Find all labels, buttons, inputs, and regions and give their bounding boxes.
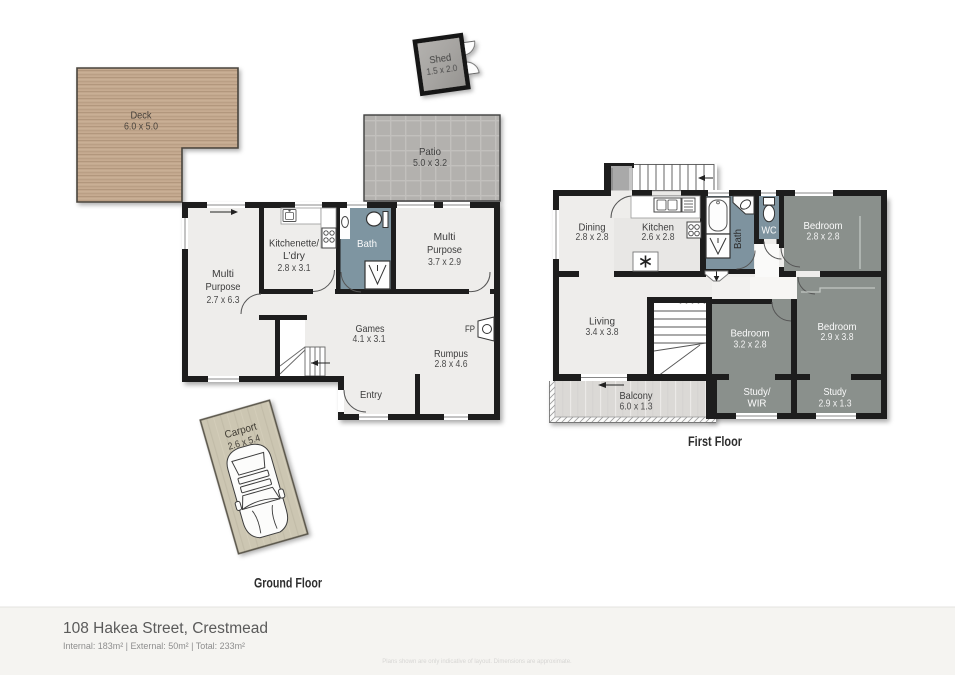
svg-text:FP: FP <box>465 324 475 334</box>
svg-text:2.8 x 2.8: 2.8 x 2.8 <box>807 232 840 243</box>
svg-text:Purpose: Purpose <box>427 244 462 256</box>
svg-text:Bedroom: Bedroom <box>804 220 843 232</box>
svg-text:3.2 x 2.8: 3.2 x 2.8 <box>734 340 767 351</box>
svg-text:Multi: Multi <box>434 231 456 243</box>
svg-text:6.0 x 5.0: 6.0 x 5.0 <box>124 122 158 133</box>
svg-text:Plans shown are only indicativ: Plans shown are only indicative of layou… <box>382 659 572 665</box>
svg-text:Study: Study <box>824 386 848 398</box>
svg-text:Living: Living <box>589 316 615 328</box>
svg-text:3.4 x 3.8: 3.4 x 3.8 <box>586 327 619 338</box>
svg-text:WC: WC <box>762 225 777 237</box>
svg-text:6.0 x 1.3: 6.0 x 1.3 <box>620 402 653 413</box>
svg-text:First Floor: First Floor <box>688 433 742 449</box>
svg-text:4.1 x 3.1: 4.1 x 3.1 <box>353 334 386 345</box>
svg-text:Bath: Bath <box>732 229 744 249</box>
svg-text:Study/: Study/ <box>744 386 771 398</box>
svg-text:2.9 x 3.8: 2.9 x 3.8 <box>821 332 854 343</box>
svg-text:Bath: Bath <box>357 238 377 250</box>
svg-text:Multi: Multi <box>212 268 234 280</box>
svg-text:Internal: 183m² | External:: Internal: 183m² | External: 50m² | Total… <box>63 641 245 652</box>
svg-text:2.7 x 6.3: 2.7 x 6.3 <box>207 295 240 306</box>
svg-text:Ground Floor: Ground Floor <box>254 575 322 591</box>
svg-text:WIR: WIR <box>748 398 767 410</box>
svg-text:Bedroom: Bedroom <box>731 328 770 340</box>
svg-text:Deck: Deck <box>131 110 153 122</box>
svg-text:5.0 x 3.2: 5.0 x 3.2 <box>413 158 447 169</box>
svg-text:2.8 x 4.6: 2.8 x 4.6 <box>435 359 468 370</box>
svg-text:Entry: Entry <box>360 389 383 401</box>
svg-text:Kitchenette/: Kitchenette/ <box>269 238 319 250</box>
svg-text:2.8 x 2.8: 2.8 x 2.8 <box>576 232 609 243</box>
svg-text:Patio: Patio <box>419 146 441 158</box>
svg-text:3.7 x 2.9: 3.7 x 2.9 <box>428 257 461 268</box>
svg-text:2.9 x 1.3: 2.9 x 1.3 <box>819 399 852 410</box>
svg-text:Balcony: Balcony <box>620 390 654 402</box>
svg-text:L’dry: L’dry <box>283 250 306 262</box>
svg-text:Purpose: Purpose <box>206 281 241 293</box>
svg-text:2.8 x 3.1: 2.8 x 3.1 <box>278 263 311 274</box>
svg-text:2.6 x 2.8: 2.6 x 2.8 <box>642 232 675 243</box>
svg-text:108 Hakea Street, Crestmead: 108 Hakea Street, Crestmead <box>63 620 268 637</box>
